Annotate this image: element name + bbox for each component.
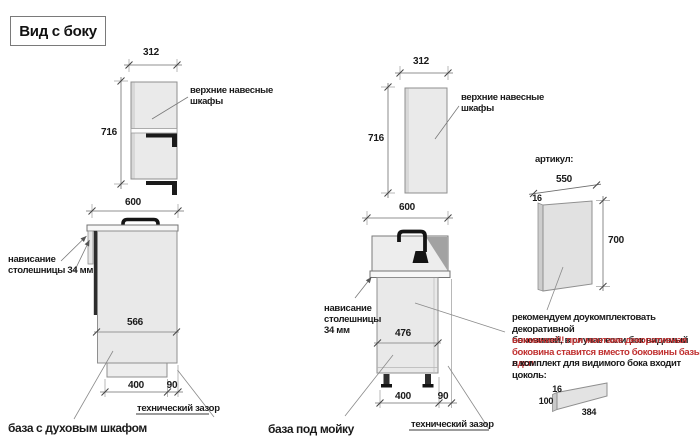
caption-oven-base: база с духовым шкафом: [8, 421, 147, 435]
dim-sink-base-depth: 476: [395, 328, 411, 339]
dim-panel-height: 700: [608, 235, 624, 246]
label-article: артикул:: [535, 154, 573, 165]
view-title: Вид с боку: [19, 23, 97, 40]
dim-oven-base-width: 600: [125, 197, 141, 208]
dim-sink-gap: 90: [438, 391, 449, 402]
gola-profile-handle: [146, 181, 177, 195]
dim-oven-plinth: 400: [128, 380, 144, 391]
dim-oven-base-depth: 566: [127, 317, 143, 328]
left-upper-cabinet-drawing: [114, 59, 188, 195]
dim-mid-upper-width: 312: [413, 56, 429, 67]
label-oven-tech-gap: технический зазор: [137, 403, 220, 414]
mid-upper-cabinet-drawing: [381, 66, 459, 198]
dim-oven-gap: 90: [167, 380, 178, 391]
dim-plinth-height: 100: [539, 396, 553, 406]
label-oven-overhang: нависание столешницы 34 мм: [8, 254, 93, 276]
label-mid-upper-cabinets: верхние навесные шкафы: [461, 92, 544, 114]
view-title-box: Вид с боку: [10, 16, 106, 46]
label-sink-tech-gap: технический зазор: [411, 419, 494, 430]
kitchen-side-view-drawing: Вид с боку 312 716 верхние навесные шкаф…: [0, 0, 700, 438]
dim-plinth-thickness: 16: [552, 384, 562, 394]
dim-left-upper-width: 312: [143, 47, 159, 58]
dim-sink-base-width: 600: [399, 202, 415, 213]
label-sink-overhang: нависание столешницы 34 мм: [324, 303, 381, 336]
dim-panel-thickness: 16: [532, 193, 542, 203]
dim-plinth-length: 384: [582, 407, 596, 417]
dim-sink-plinth: 400: [395, 391, 411, 402]
dim-left-upper-height: 716: [101, 127, 117, 138]
note-plinth-included: в комплект для видимого бока входит цоко…: [512, 358, 700, 381]
caption-sink-base: база под мойку: [268, 422, 354, 436]
label-left-upper-cabinets: верхние навесные шкафы: [190, 85, 273, 107]
dim-panel-width: 550: [556, 174, 572, 185]
cabinet-legs: [381, 374, 434, 388]
dim-mid-upper-height: 716: [368, 133, 384, 144]
